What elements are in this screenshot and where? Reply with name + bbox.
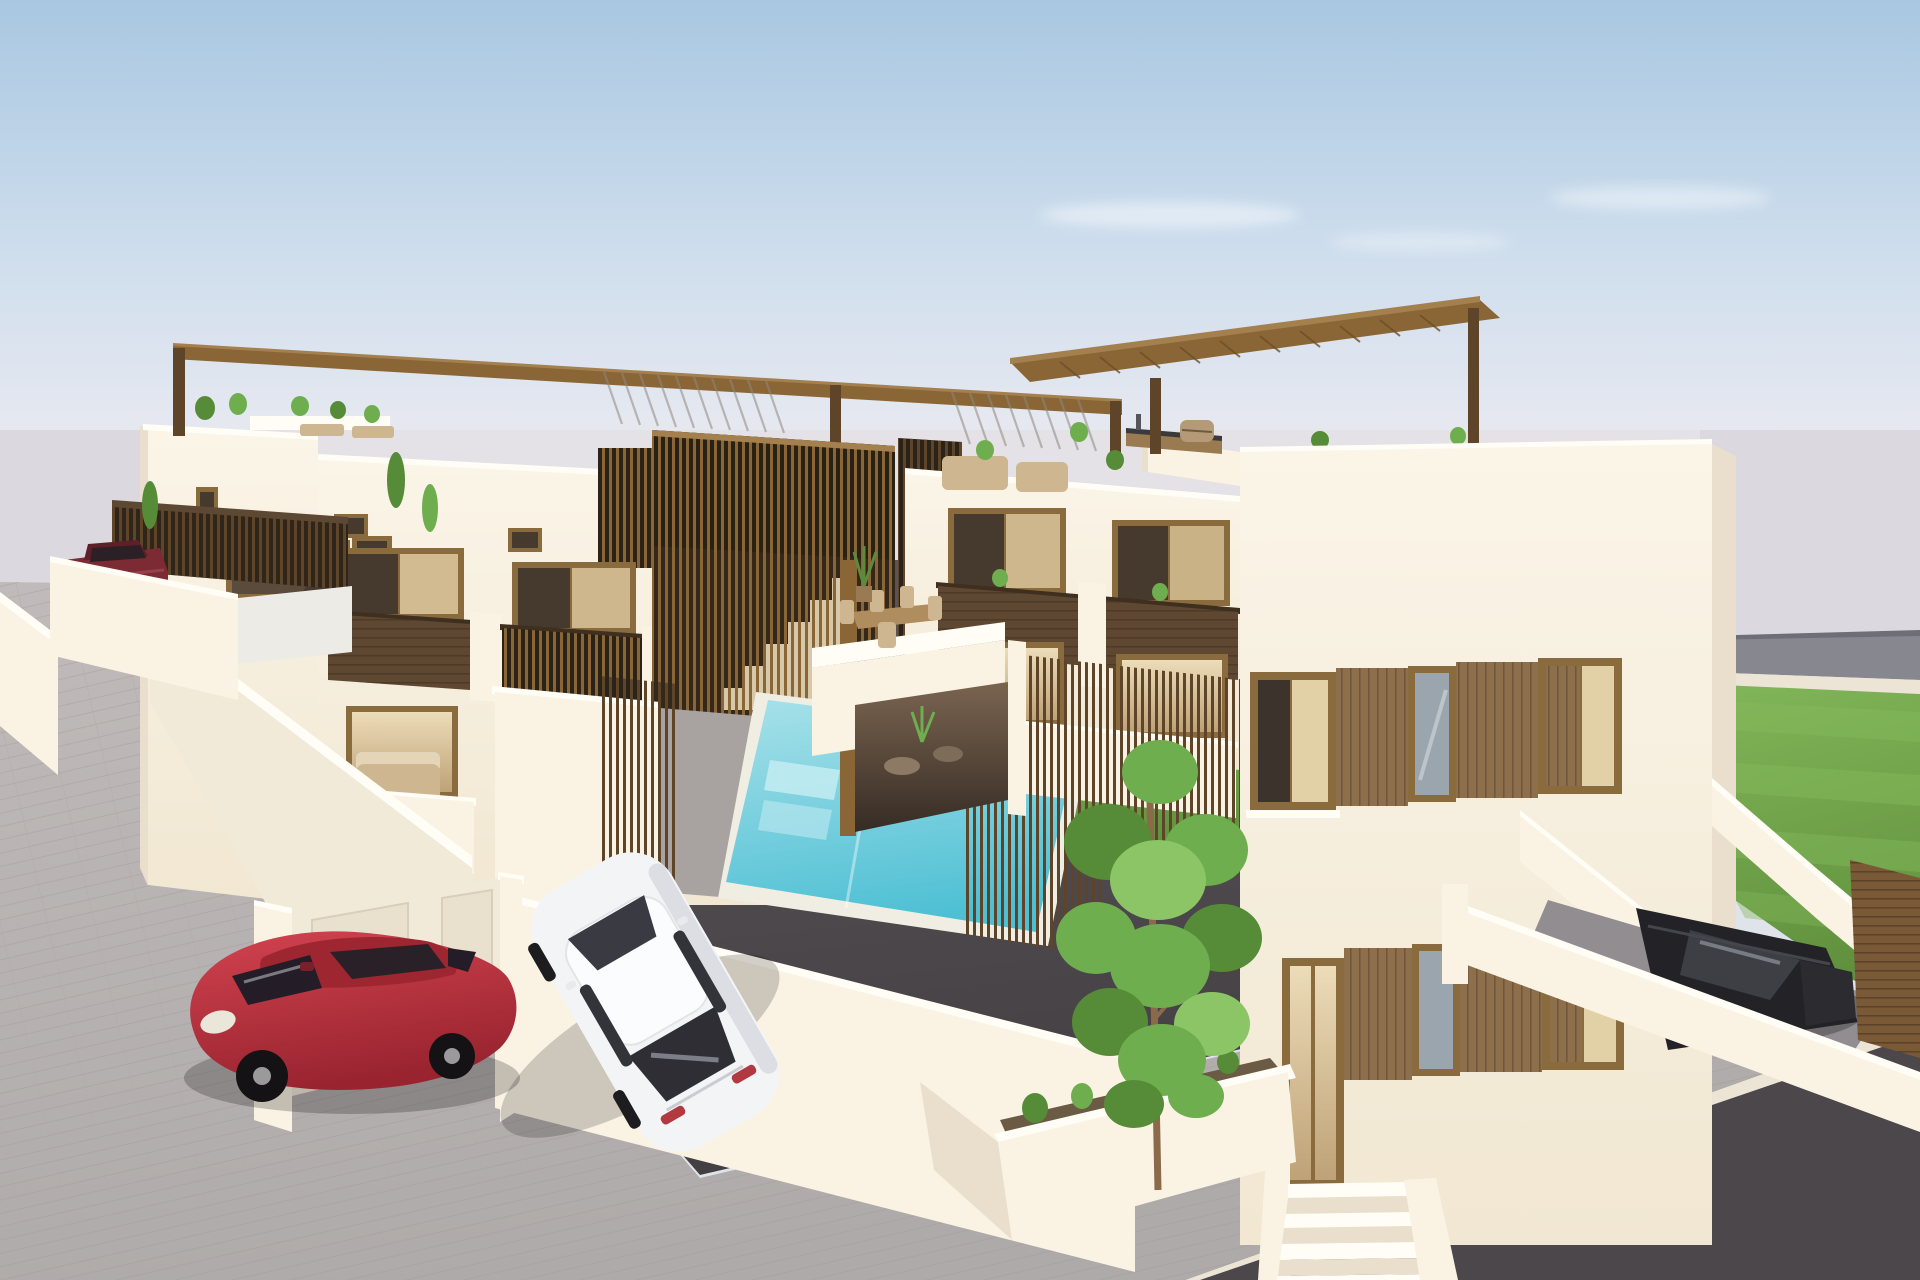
wood-gate [1850,860,1920,1058]
upper-window-band [1246,658,1622,818]
red-hatchback [184,931,520,1114]
architectural-render [0,0,1920,1280]
